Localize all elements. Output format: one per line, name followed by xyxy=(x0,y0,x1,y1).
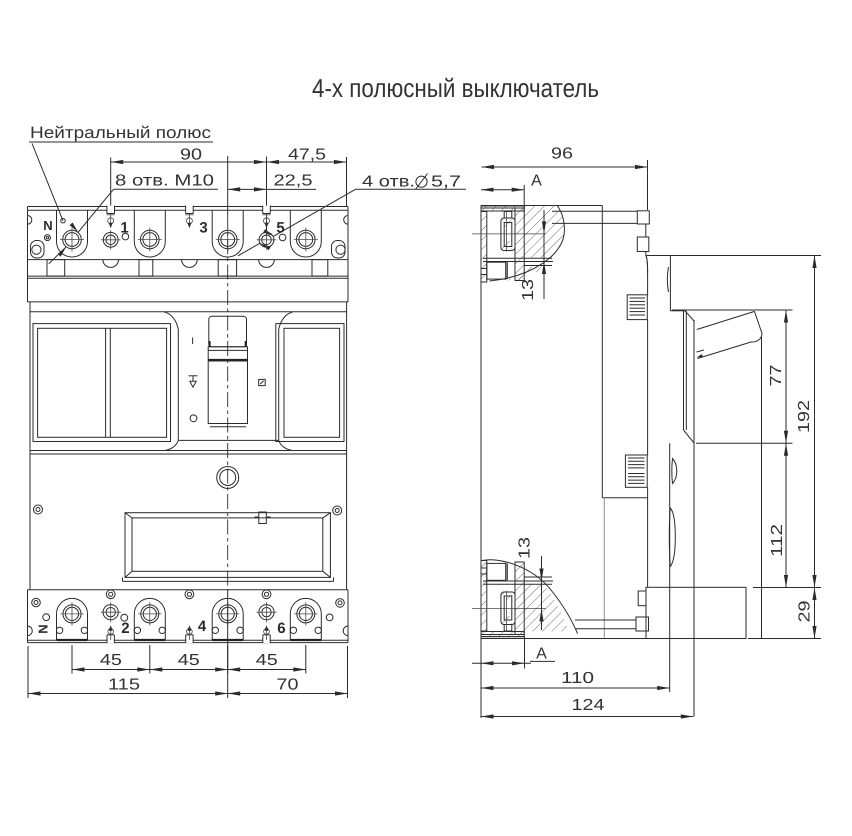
svg-text:22,5: 22,5 xyxy=(274,173,313,190)
svg-text:13: 13 xyxy=(520,279,537,301)
svg-text:4: 4 xyxy=(198,618,207,635)
svg-text:110: 110 xyxy=(561,670,594,687)
svg-text:4-х полюсный выключатель: 4-х полюсный выключатель xyxy=(312,73,599,103)
svg-text:29: 29 xyxy=(797,600,814,622)
svg-text:115: 115 xyxy=(108,677,140,694)
svg-text:3: 3 xyxy=(199,220,207,237)
svg-text:96: 96 xyxy=(551,146,573,163)
svg-text:4 отв.: 4 отв. xyxy=(362,173,415,190)
svg-text:124: 124 xyxy=(572,697,605,714)
svg-text:A: A xyxy=(531,173,542,190)
svg-text:45: 45 xyxy=(256,652,278,669)
svg-text:112: 112 xyxy=(769,524,786,557)
svg-text:8 отв. М10: 8 отв. М10 xyxy=(115,173,214,190)
svg-text:70: 70 xyxy=(277,677,299,694)
svg-text:6: 6 xyxy=(277,620,285,637)
svg-text:Нейтральный полюс: Нейтральный полюс xyxy=(30,124,211,142)
svg-text:13: 13 xyxy=(517,537,534,559)
svg-text:A: A xyxy=(536,646,547,663)
svg-text:90: 90 xyxy=(180,147,202,164)
svg-text:N: N xyxy=(36,624,51,633)
svg-text:45: 45 xyxy=(178,652,200,669)
svg-text:47,5: 47,5 xyxy=(288,147,326,164)
svg-text:5,7: 5,7 xyxy=(431,173,461,190)
svg-text:77: 77 xyxy=(768,364,785,386)
svg-text:2: 2 xyxy=(121,620,129,637)
svg-text:45: 45 xyxy=(100,652,122,669)
svg-text:N: N xyxy=(43,218,52,233)
svg-text:192: 192 xyxy=(796,400,813,433)
